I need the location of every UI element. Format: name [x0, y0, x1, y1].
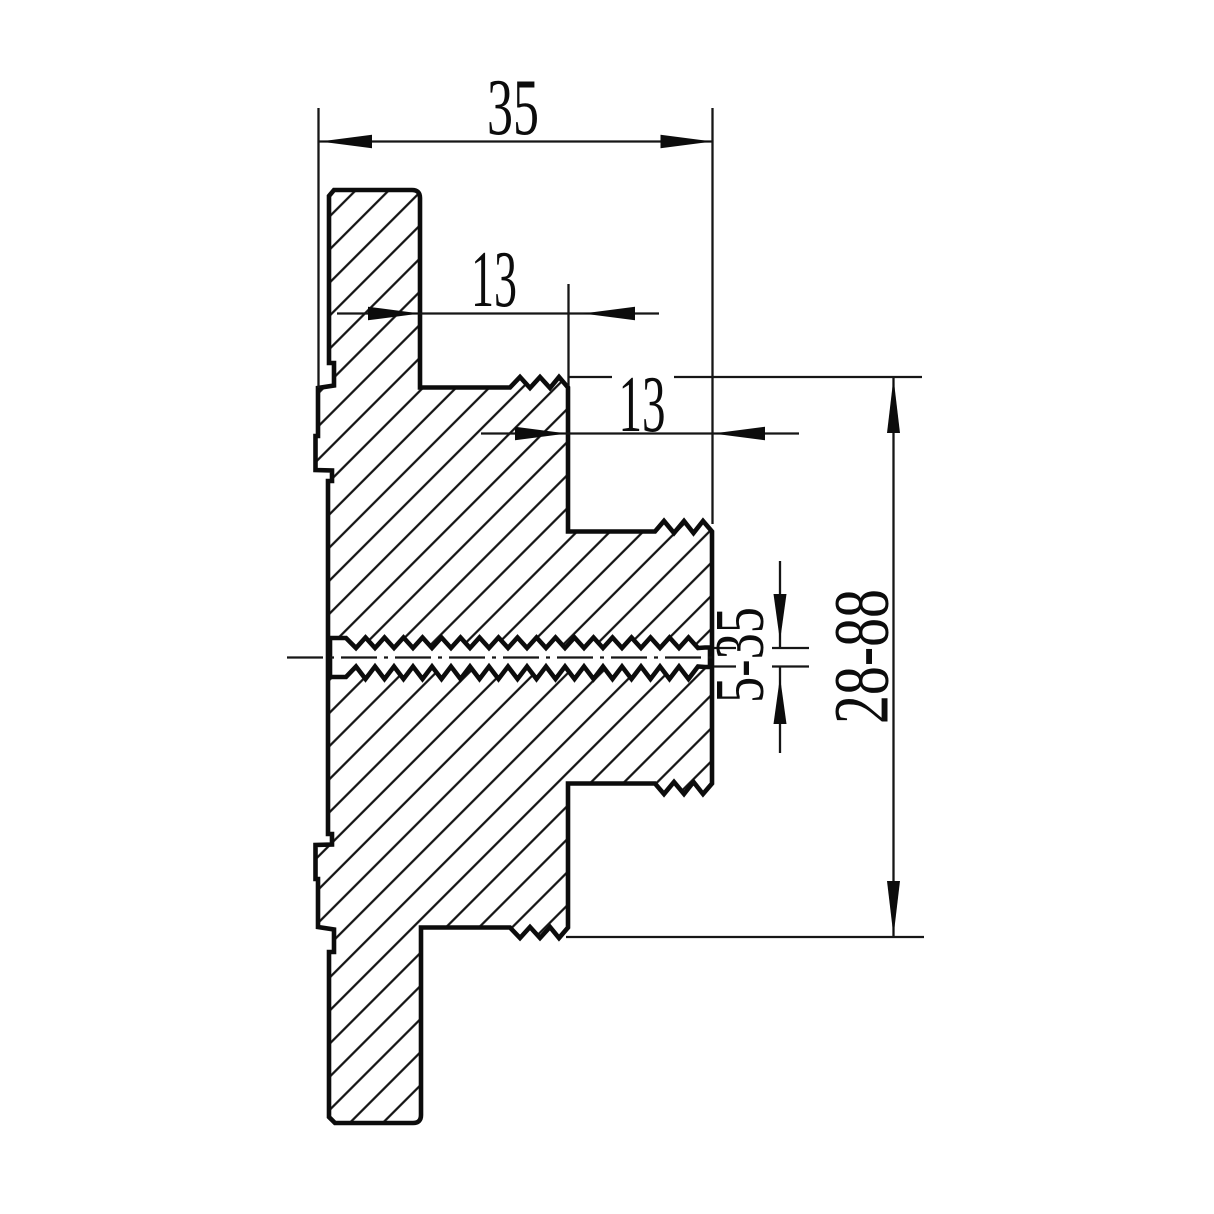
svg-text:5-35: 5-35 — [702, 607, 779, 703]
svg-text:28-88: 28-88 — [818, 589, 905, 724]
svg-text:35: 35 — [487, 64, 539, 152]
svg-text:13: 13 — [619, 361, 666, 449]
svg-text:13: 13 — [471, 236, 517, 324]
